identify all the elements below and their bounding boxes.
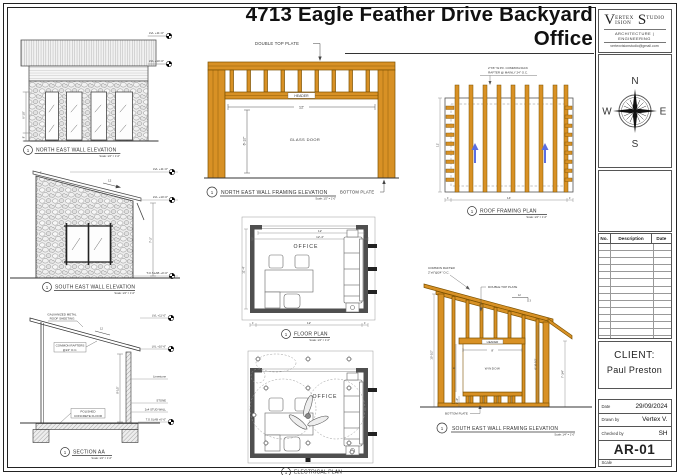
sheet-title-line2: Office	[240, 27, 593, 51]
client-box: CLIENT: Paul Preston	[598, 341, 672, 389]
compass-w: W	[602, 107, 612, 118]
panel-spacer	[598, 170, 672, 232]
logo-subtitle: ARCHITECTURE | ENGINEERING	[604, 29, 666, 43]
revision-row	[599, 301, 671, 308]
revision-row	[599, 336, 671, 339]
revision-row	[599, 279, 671, 286]
checked-by: SH	[659, 430, 668, 437]
revision-row	[599, 329, 671, 336]
revision-row	[599, 272, 671, 279]
title-underline	[345, 53, 594, 54]
revision-table-header: No. Description Date	[599, 234, 671, 244]
logo-letter-v: V	[604, 14, 615, 27]
compass-n: N	[631, 76, 638, 87]
compass-box: N S W E	[598, 54, 672, 168]
date-row: Date 29/09/2024	[599, 400, 671, 414]
logo-email: vertexvisionstudio@gmail.com	[599, 44, 671, 48]
sheet-date: 29/09/2024	[636, 403, 668, 410]
revision-row	[599, 251, 671, 258]
title-block-panel: V ERTEX ISION S TUDIO ARCHITECTURE | ENG…	[595, 7, 673, 468]
revision-row	[599, 258, 671, 265]
client-label: CLIENT:	[599, 350, 671, 361]
sheet-info-block: Date 29/09/2024 Drawn by Vertex V. Check…	[598, 399, 672, 467]
scale-row: Scale	[599, 460, 671, 466]
drawn-by-row: Drawn by Vertex V.	[599, 414, 671, 428]
compass-s: S	[631, 139, 638, 150]
compass-e: E	[659, 107, 666, 118]
sheet-title: 4713 Eagle Feather Drive Backyard Office	[240, 3, 593, 50]
revision-row	[599, 322, 671, 329]
checked-by-row: Checked by SH	[599, 427, 671, 441]
revision-row	[599, 287, 671, 294]
client-name: Paul Preston	[599, 365, 671, 375]
firm-logo: V ERTEX ISION S TUDIO ARCHITECTURE | ENG…	[598, 9, 672, 53]
revision-row	[599, 308, 671, 315]
drawn-by: Vertex V.	[642, 416, 667, 423]
sheet-number: AR-01	[599, 441, 671, 460]
revision-row	[599, 244, 671, 251]
revision-table: No. Description Date	[598, 233, 672, 339]
revision-row	[599, 315, 671, 322]
drawing-sheet: { "title": { "line1": "4713 Eagle Feathe…	[0, 0, 680, 475]
revision-row	[599, 265, 671, 272]
revision-row	[599, 294, 671, 301]
compass-icon: N S W E	[600, 58, 670, 164]
sheet-inner-frame	[7, 7, 673, 468]
logo-letter-s: S	[638, 14, 646, 27]
sheet-title-line1: 4713 Eagle Feather Drive Backyard	[240, 3, 593, 27]
